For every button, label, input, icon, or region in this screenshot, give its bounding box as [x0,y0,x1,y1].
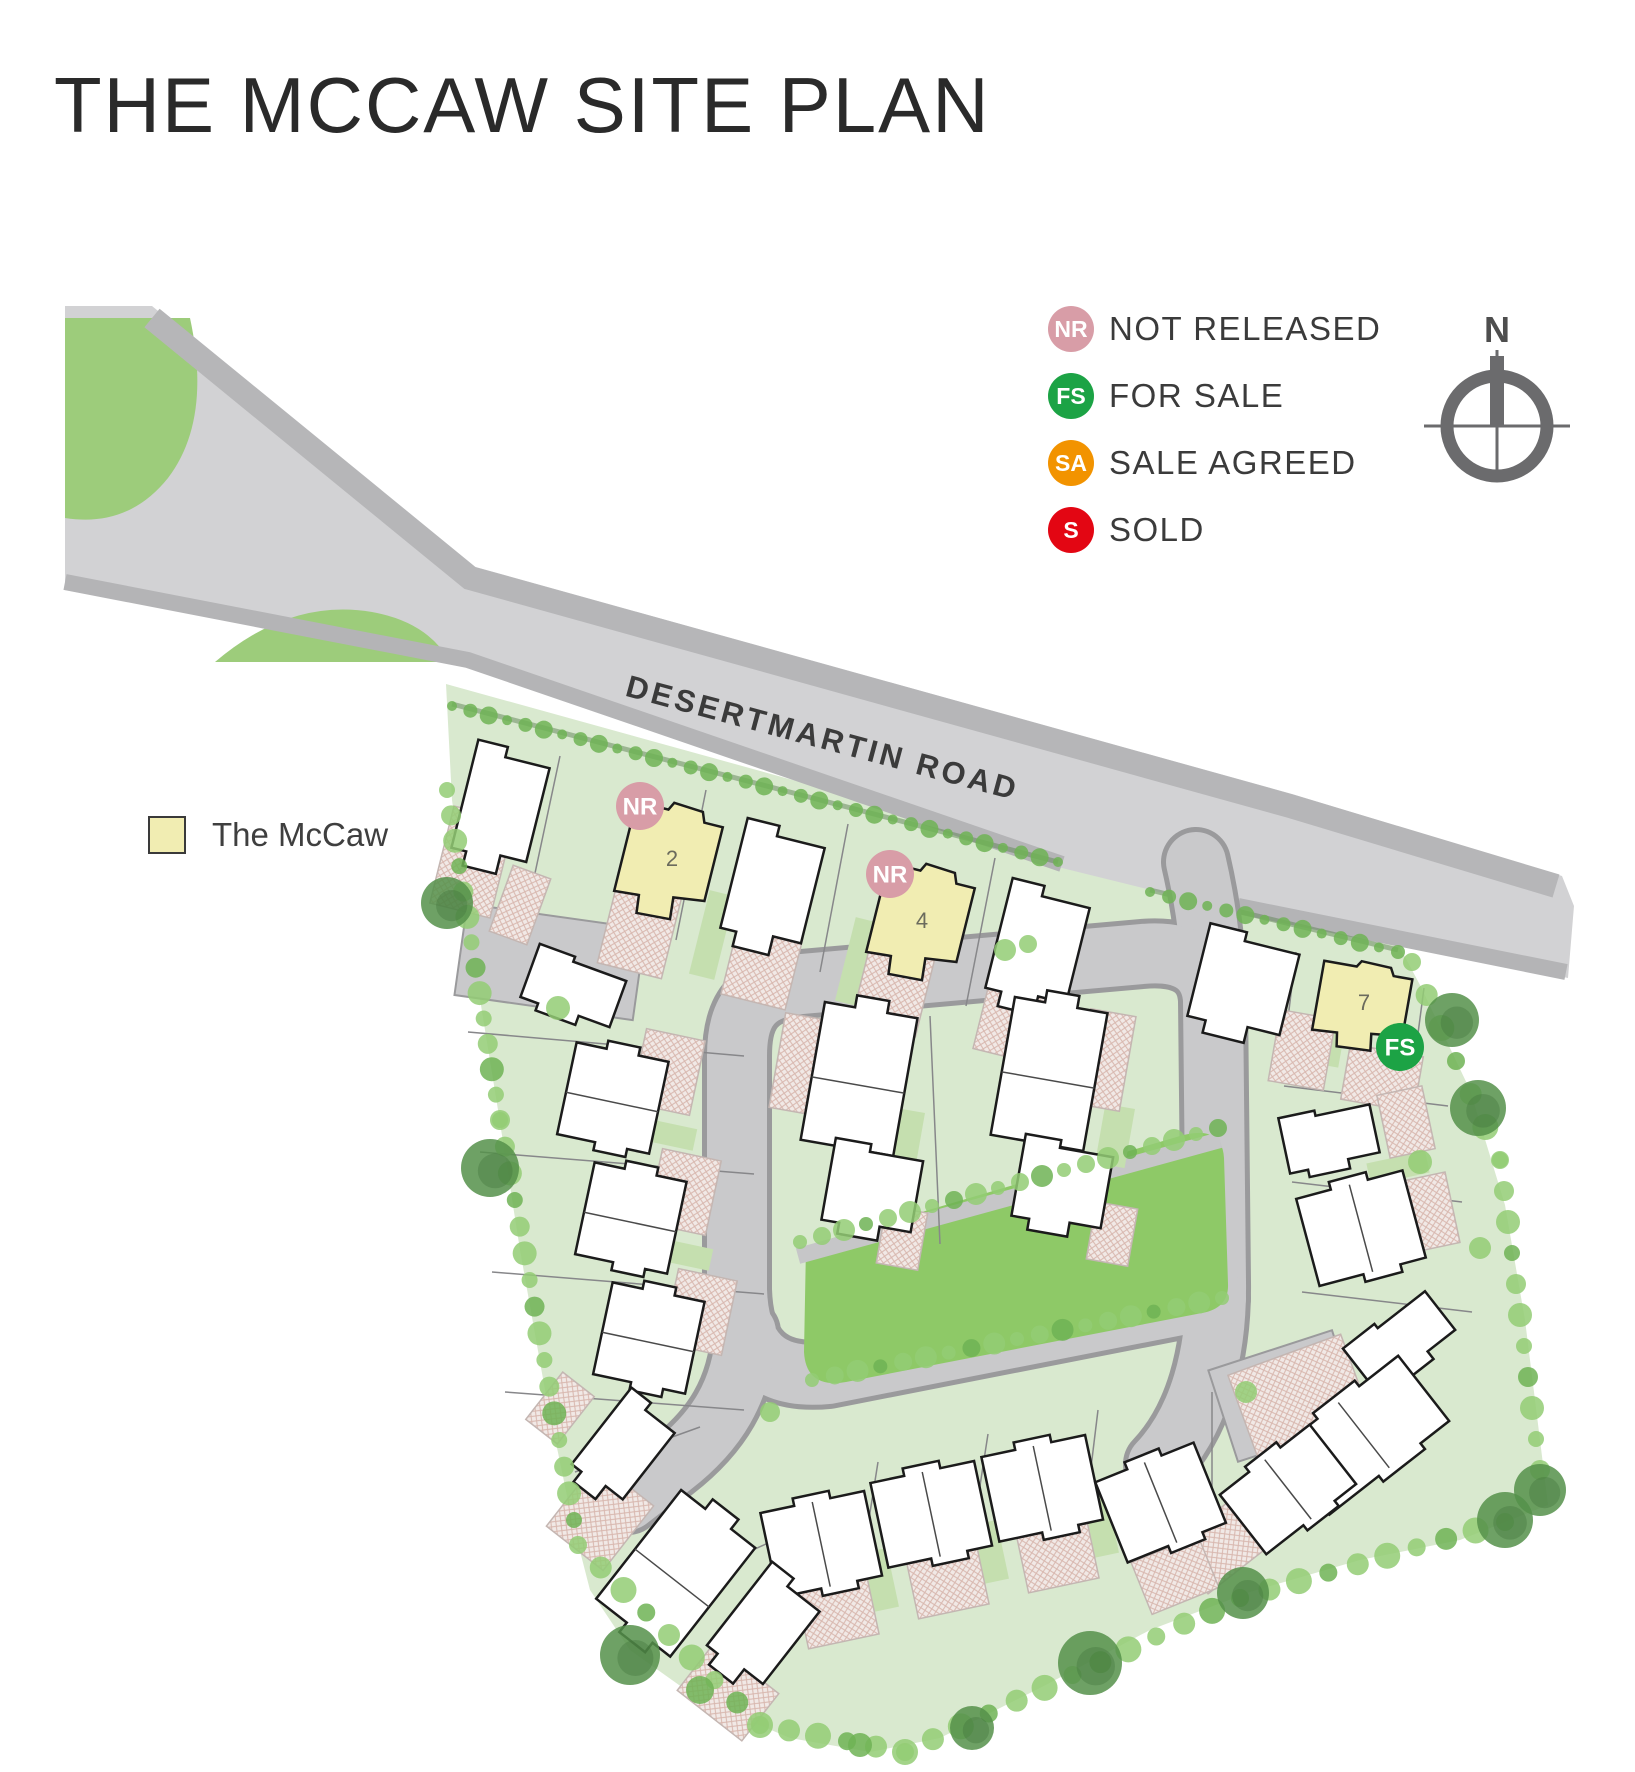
s-badge-icon: S [1048,507,1094,553]
plot-4-number: 4 [916,908,928,933]
plot-4-status-text: NR [873,861,908,888]
house-type-label: The McCaw [212,816,388,854]
legend-label: SALE AGREED [1109,444,1357,482]
legend-item-sale-agreed: SA SALE AGREED [1048,440,1381,486]
legend-item-sold: S SOLD [1048,507,1381,553]
compass-n-label: N [1484,309,1510,350]
plot-7-status-text: FS [1385,1034,1416,1061]
legend-label: FOR SALE [1109,377,1284,415]
plot-7-marker: FS [1376,1023,1424,1071]
legend-item-for-sale: FS FOR SALE [1048,373,1381,419]
fs-badge-icon: FS [1048,373,1094,419]
legend-label: NOT RELEASED [1109,310,1381,348]
status-legend: NR NOT RELEASED FS FOR SALE SA SALE AGRE… [1048,306,1381,574]
plot-2-number: 2 [666,846,678,871]
north-arrow-icon: N [1422,298,1592,508]
plot-2-status-text: NR [623,793,658,820]
mccaw-swatch-icon [148,816,186,854]
site-plan-map: 2 4 7 NR NR FS DESERTMARTIN ROAD [0,0,1635,1772]
plot-7-number: 7 [1358,990,1370,1015]
plot-4-marker: NR [866,850,914,898]
nr-badge-icon: NR [1048,306,1094,352]
legend-item-not-released: NR NOT RELEASED [1048,306,1381,352]
sa-badge-icon: SA [1048,440,1094,486]
compass: N [1422,298,1592,508]
page-title: THE MCCAW SITE PLAN [54,60,991,151]
legend-label: SOLD [1109,511,1205,549]
site-plan-page: 2 4 7 NR NR FS DESERTMARTIN ROAD THE MCC… [0,0,1635,1772]
plot-2-marker: NR [616,782,664,830]
house-type-key: The McCaw [148,816,388,854]
